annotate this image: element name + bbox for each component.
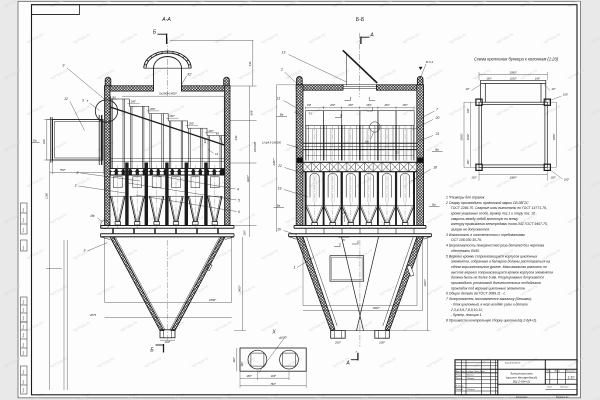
svg-text:Масштаб: Масштаб — [566, 371, 576, 373]
svg-text:ОСТ 108.030.30-79.: ОСТ 108.030.30-79. — [451, 238, 482, 242]
svg-text:5 Верхние кромки соприкасающих: 5 Верхние кромки соприкасающихся корпусо… — [446, 254, 538, 258]
svg-text:2080*: 2080* — [509, 71, 518, 75]
svg-text:2387*: 2387* — [272, 157, 276, 166]
svg-text:Подп: Подп — [22, 299, 25, 305]
svg-text:1800*: 1800* — [372, 306, 380, 310]
svg-text:Провер.: Провер. — [456, 378, 464, 380]
svg-text:А: А — [369, 33, 374, 39]
svg-text:12: 12 — [64, 97, 68, 101]
svg-text:11: 11 — [277, 97, 281, 101]
svg-text:3: 3 — [84, 249, 86, 253]
svg-text:Подп: Подп — [22, 350, 25, 356]
svg-text:2675: 2675 — [89, 313, 97, 317]
svg-text:1180: 1180 — [45, 193, 49, 199]
svg-text:2 Сварку производить проволоко: 2 Сварку производить проволокой марки СВ… — [445, 201, 529, 205]
svg-text:Схема крепления бункера к коло: Схема крепления бункера к колоннам (1:20… — [474, 57, 559, 62]
svg-text:3 Изготовить в соответствии с: 3 Изготовить в соответствии с требования… — [446, 233, 525, 237]
svg-text:Разраб.: Разраб. — [456, 375, 463, 377]
svg-text:280*: 280* — [188, 123, 195, 126]
svg-text:Подп: Подп — [22, 332, 25, 338]
svg-text:7: 7 — [436, 108, 438, 112]
svg-text:Подп: Подп — [22, 207, 25, 213]
svg-text:243: 243 — [234, 135, 238, 141]
svg-text:Д: Д — [294, 110, 297, 114]
svg-text:1400*: 1400* — [238, 284, 242, 292]
svg-text:280*: 280* — [149, 108, 156, 111]
svg-text:Листов 1: Листов 1 — [559, 387, 568, 389]
svg-text:1980*: 1980* — [510, 175, 518, 179]
svg-text:280*: 280* — [329, 104, 336, 107]
svg-text:- бункер, позиция 1.: - бункер, позиция 1. — [451, 313, 482, 317]
svg-text:200*: 200* — [334, 340, 342, 344]
svg-text:Подп: Подп — [22, 227, 25, 233]
svg-text:280*: 280* — [207, 130, 214, 133]
svg-text:9: 9 — [63, 64, 65, 68]
svg-text:Петров: Петров — [467, 378, 474, 380]
svg-text:750*: 750* — [60, 168, 67, 172]
svg-text:Бв: Бв — [432, 203, 436, 207]
svg-text:14: 14 — [215, 152, 219, 156]
svg-text:ф200*: ф200* — [279, 336, 288, 340]
svg-text:2,3,4,5,6,7,8,9,10,11;: 2,3,4,5,6,7,8,9,10,11; — [450, 308, 483, 312]
svg-text:280*: 280* — [383, 104, 390, 107]
svg-text:280*: 280* — [402, 104, 409, 107]
svg-text:1: 1 — [294, 266, 296, 270]
svg-text:1800*: 1800* — [209, 298, 217, 302]
svg-text:280*: 280* — [347, 104, 354, 107]
svg-text:7: 7 — [75, 184, 77, 188]
svg-text:1 *Размеры для справок.: 1 *Размеры для справок. — [446, 195, 485, 199]
svg-text:1630*: 1630* — [466, 133, 470, 141]
svg-text:6: 6 — [238, 210, 240, 214]
svg-text:контуру примыкания электродами: контуру примыкания электродами типа Э42 … — [451, 222, 548, 226]
svg-text:Подп: Подп — [22, 379, 25, 385]
svg-text:Вв: Вв — [435, 148, 439, 152]
svg-text:2: 2 — [280, 68, 283, 72]
svg-text:производить установкой дополни: производить установкой дополнительных от… — [451, 281, 541, 285]
svg-text:2080*: 2080* — [460, 133, 464, 142]
svg-text:22: 22 — [277, 164, 282, 168]
svg-text:10: 10 — [277, 228, 281, 232]
svg-text:А-А: А-А — [161, 17, 171, 23]
svg-text:Сидоров: Сидоров — [467, 388, 475, 391]
svg-text:элементов, собранные в батарею: элементов, собранные в батарею должны ра… — [451, 260, 550, 264]
svg-text:ГОСТ 2246-70. Сварные швы выпо: ГОСТ 2246-70. Сварные швы выполнять по Г… — [451, 206, 547, 210]
svg-text:280*: 280* — [365, 104, 372, 107]
svg-text:К3: К3 — [216, 132, 220, 136]
svg-text:Б-Б: Б-Б — [356, 17, 365, 23]
svg-text:Масса: Масса — [555, 371, 561, 373]
svg-text:180*: 180* — [467, 159, 470, 164]
svg-text:БЦ-2-6.00.000 СБ: БЦ-2-6.00.000 СБ — [505, 363, 521, 365]
svg-text:обеспечить Rz50.: обеспечить Rz50. — [451, 249, 480, 253]
svg-text:Подп: Подп — [22, 342, 25, 348]
svg-text:180*: 180* — [467, 108, 470, 113]
svg-text:Лист: Лист — [546, 387, 552, 389]
svg-text:1980*: 1980* — [552, 133, 556, 141]
svg-text:3: 3 — [82, 99, 84, 103]
svg-text:424: 424 — [204, 138, 207, 143]
svg-text:19: 19 — [278, 187, 282, 191]
svg-text:Вв: Вв — [280, 113, 284, 117]
svg-text:высоте верхних соприкасающихся: высоте верхних соприкасающихся кромок ко… — [451, 270, 553, 274]
svg-text:534: 534 — [248, 61, 252, 66]
svg-text:Подп: Подп — [22, 315, 25, 321]
svg-text:зазоры не допускаются.: зазоры не допускаются. — [450, 228, 490, 232]
svg-text:Формат А1: Формат А1 — [556, 396, 569, 399]
svg-text:кроме указанных особо. Бункер: кроме указанных особо. Бункер поз.1 и оп… — [451, 211, 535, 215]
svg-text:235/248: 235/248 — [253, 142, 257, 154]
svg-text:Н.контр.: Н.контр. — [456, 386, 464, 388]
svg-text:Подп: Подп — [22, 324, 25, 330]
svg-text:5x280=1400*: 5x280=1400* — [159, 91, 178, 95]
svg-text:200*: 200* — [378, 340, 386, 344]
svg-text:Подп: Подп — [22, 369, 25, 375]
svg-text:600: 600 — [42, 139, 46, 144]
svg-text:прокладок под верхние циклонны: прокладок под верхние циклонные элементо… — [451, 286, 526, 290]
svg-text:1:10: 1:10 — [568, 376, 575, 380]
svg-text:К3: К3 — [395, 151, 399, 155]
svg-text:5: 5 — [238, 198, 240, 202]
svg-text:Изм Лист № докум. Подп.: Изм Лист № докум. Подп. Дата — [456, 370, 485, 373]
svg-text:сварить между собой вплотную п: сварить между собой вплотную по всему — [451, 217, 518, 221]
svg-text:8 Произвести контрольную сборк: 8 Произвести контрольную сборку циклона … — [446, 318, 537, 322]
svg-text:13: 13 — [282, 51, 286, 55]
svg-text:Кв: Кв — [365, 140, 369, 144]
svg-text:Иванов: Иванов — [467, 375, 473, 377]
svg-text:Ев: Ев — [33, 139, 37, 143]
svg-text:7 Золоуловитель поставляется з: 7 Золоуловитель поставляется заказчику (… — [446, 297, 532, 301]
svg-text:Лит.: Лит. — [545, 371, 551, 373]
svg-text:А: А — [345, 361, 350, 367]
svg-text:21: 21 — [435, 132, 440, 136]
svg-text:158: 158 — [111, 95, 116, 99]
svg-text:Бв: Бв — [277, 204, 281, 208]
svg-text:М-5,4: М-5,4 — [426, 60, 434, 64]
svg-text:8: 8 — [77, 171, 79, 175]
svg-text:Х: Х — [271, 330, 276, 336]
svg-text:Подп: Подп — [22, 245, 25, 251]
svg-text:- блок циклонный, в него входя: - блок циклонный, в него входят узлы и д… — [451, 302, 528, 306]
svg-text:Копировал: Копировал — [516, 397, 528, 399]
svg-text:Ив: Ив — [91, 214, 95, 218]
svg-text:18: 18 — [433, 166, 437, 170]
svg-text:158: 158 — [307, 104, 312, 107]
svg-text:200*: 200* — [164, 340, 172, 344]
svg-text:Подп: Подп — [22, 387, 25, 393]
svg-text:одном горизонтальном уровне. М: одном горизонтальном уровне. Максимальна… — [451, 265, 547, 269]
svg-text:4: 4 — [237, 187, 239, 191]
svg-text:6 Общие детали по ГОСТ 3089.11: 6 Общие детали по ГОСТ 3089.11 - с. — [446, 292, 506, 296]
svg-text:12-ф4,3-190/280: 12-ф4,3-190/280 — [262, 142, 282, 145]
svg-text:4 Шероховатость поверхностей р: 4 Шероховатость поверхностей реза детале… — [446, 244, 544, 248]
svg-text:Подп: Подп — [22, 307, 25, 313]
svg-text:20: 20 — [435, 116, 440, 120]
svg-text:1630*: 1630* — [510, 77, 518, 80]
svg-text:должна быть не более 6 мм. Рег: должна быть не более 6 мм. Регулирование… — [451, 276, 544, 280]
svg-text:БЦ-2-6(4+2): БЦ-2-6(4+2) — [513, 380, 530, 384]
svg-text:1620*: 1620* — [246, 174, 250, 182]
svg-text:180*: 180* — [241, 361, 244, 366]
svg-text:Т-I: Т-I — [308, 112, 311, 116]
svg-text:Подп: Подп — [22, 217, 25, 223]
svg-text:280*: 280* — [169, 115, 176, 118]
svg-text:Утверд.: Утверд. — [456, 388, 464, 391]
svg-text:608: 608 — [250, 110, 254, 115]
svg-text:К2: К2 — [188, 73, 192, 77]
svg-text:280*: 280* — [130, 101, 137, 104]
svg-text:1400*: 1400* — [423, 278, 427, 286]
